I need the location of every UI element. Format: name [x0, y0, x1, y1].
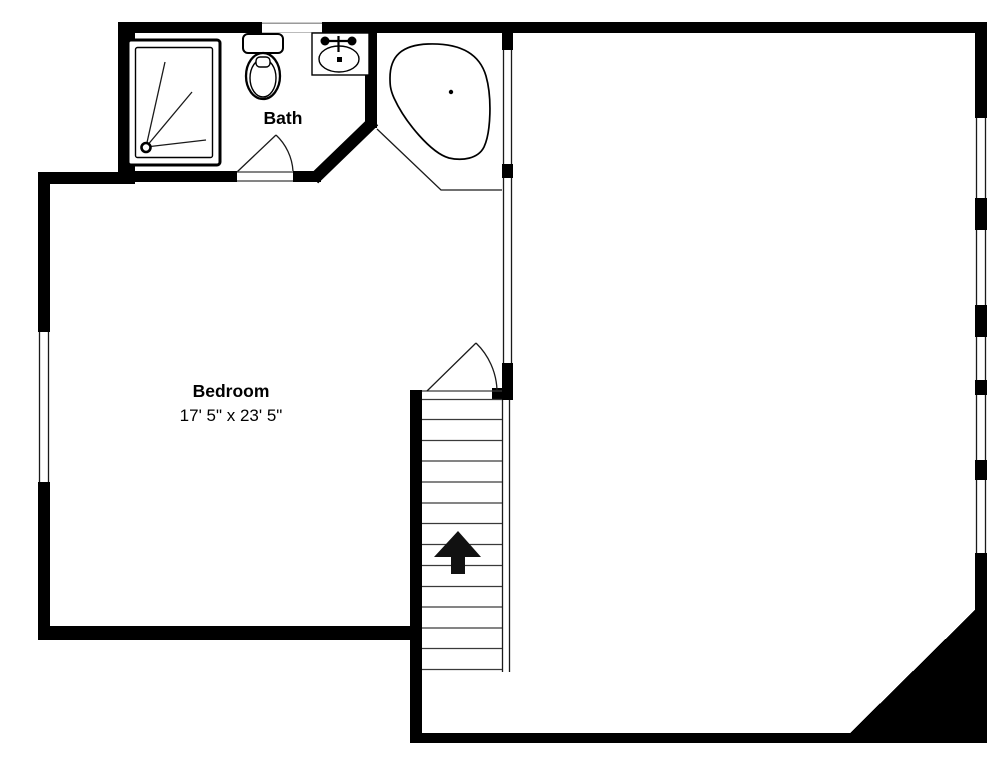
stair-door-swing	[427, 343, 497, 391]
shower-stall	[128, 40, 220, 165]
windows	[40, 118, 986, 553]
corner-chamfer-wall	[847, 607, 978, 736]
bedroom-label: Bedroom	[193, 381, 270, 401]
sink-vanity	[312, 33, 369, 75]
bedroom-dimensions: 17' 5" x 23' 5"	[180, 406, 283, 425]
toilet	[243, 34, 283, 99]
bath-door-swing	[237, 135, 293, 181]
floorplan: Bath Bedroom 17' 5" x 23' 5"	[0, 0, 1000, 762]
window-right-2	[977, 230, 986, 305]
tub-drain	[449, 90, 453, 94]
diagonal-wall	[314, 121, 374, 179]
window-right-5	[977, 480, 986, 553]
floorplan-canvas: Bath Bedroom 17' 5" x 23' 5"	[0, 0, 1000, 762]
window-right-3	[977, 337, 986, 380]
partition-wall	[492, 33, 513, 400]
window-right-4	[977, 395, 986, 460]
window-left	[40, 332, 49, 482]
shower-door-pivot	[142, 143, 151, 152]
bath-label: Bath	[264, 108, 303, 128]
window-right-1	[977, 118, 986, 198]
up-arrow-icon	[434, 531, 481, 574]
corner-bathtub	[377, 44, 502, 190]
staircase	[410, 390, 510, 743]
top-wall-window	[262, 23, 322, 33]
